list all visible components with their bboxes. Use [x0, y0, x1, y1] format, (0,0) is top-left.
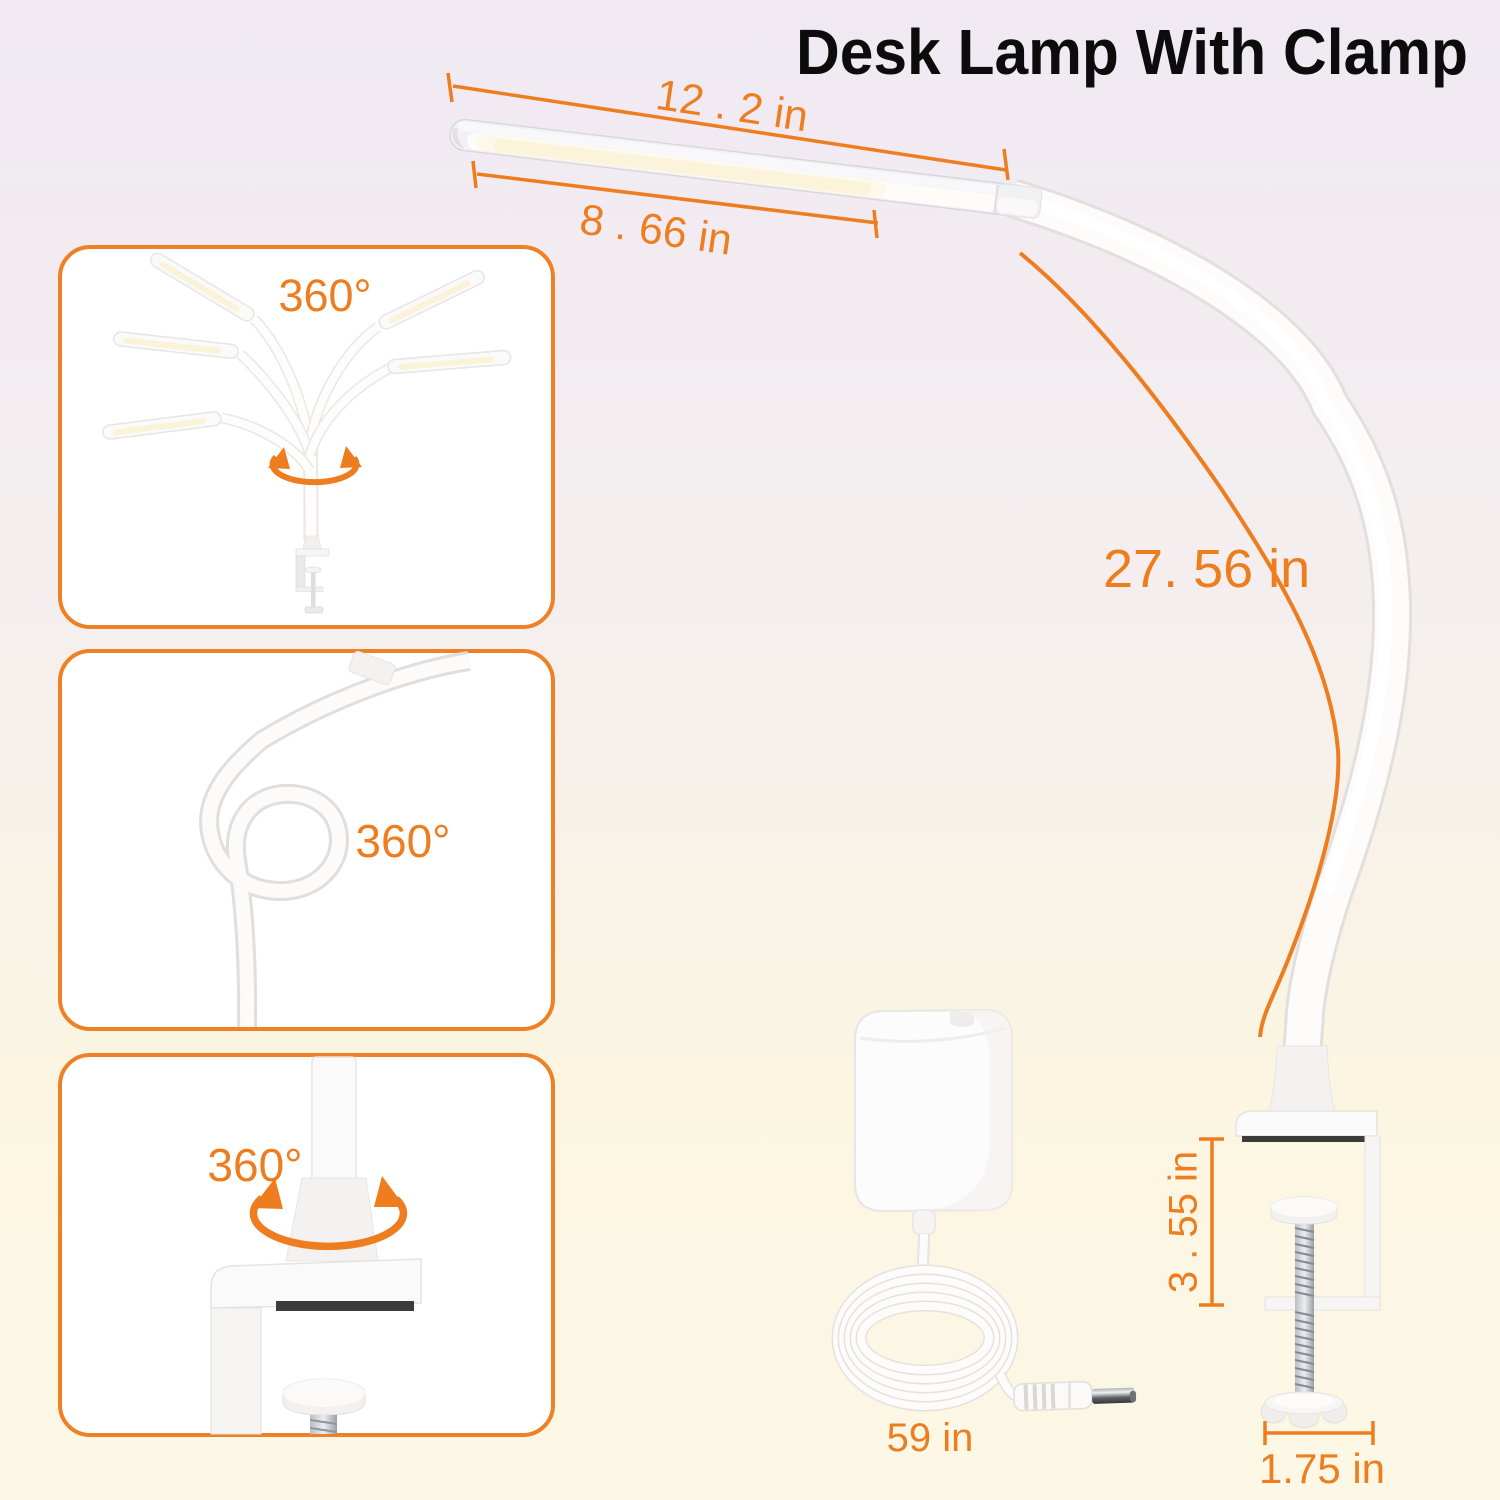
svg-text:360°: 360°: [278, 270, 371, 321]
svg-text:27. 56 in: 27. 56 in: [1103, 539, 1310, 599]
svg-text:360°: 360°: [355, 815, 450, 867]
svg-text:360°: 360°: [207, 1139, 302, 1191]
svg-text:59 in: 59 in: [887, 1416, 974, 1460]
svg-text:1.75 in: 1.75 in: [1259, 1445, 1385, 1492]
svg-text:Desk Lamp With Clamp: Desk Lamp With Clamp: [796, 16, 1468, 88]
svg-text:3 . 55 in: 3 . 55 in: [1162, 1151, 1206, 1293]
